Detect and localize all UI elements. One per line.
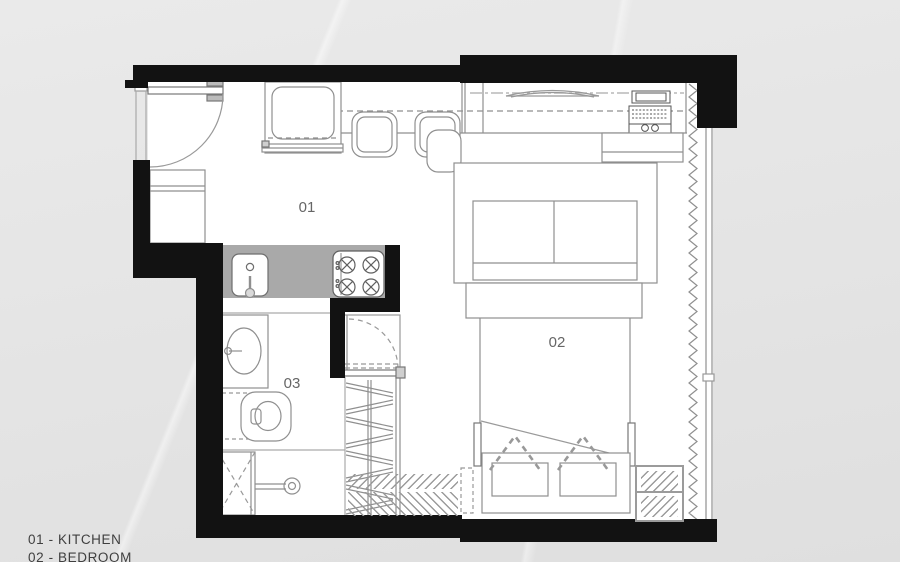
rug-divider bbox=[637, 491, 682, 493]
floor-mat-row-top bbox=[348, 474, 458, 489]
room-label-bathroom: 03 bbox=[284, 375, 301, 392]
floor-plan-canvas: 01 02 03 01 - KITCHEN 02 - BEDROOM bbox=[0, 0, 900, 562]
bathroom-door bbox=[341, 315, 405, 378]
laptop bbox=[629, 91, 671, 133]
rug-row bbox=[641, 496, 678, 517]
legend-item-bedroom: 02 - BEDROOM bbox=[28, 549, 132, 562]
shoe-cabinet bbox=[150, 170, 205, 243]
room-label-bedroom: 02 bbox=[549, 334, 566, 351]
cooktop-4-burners bbox=[333, 251, 384, 297]
refrigerator bbox=[262, 82, 343, 153]
legend-item-kitchen: 01 - KITCHEN bbox=[28, 531, 121, 549]
floor-mat-row-bottom bbox=[348, 492, 458, 516]
rug-row bbox=[641, 471, 678, 492]
bar-stool bbox=[352, 112, 397, 157]
shower bbox=[218, 452, 255, 515]
drawer-unit bbox=[602, 133, 683, 162]
rug bbox=[635, 465, 684, 522]
kitchen-sink bbox=[232, 254, 268, 298]
bathroom-sink bbox=[220, 315, 268, 388]
room-label-kitchen: 01 bbox=[299, 199, 316, 216]
